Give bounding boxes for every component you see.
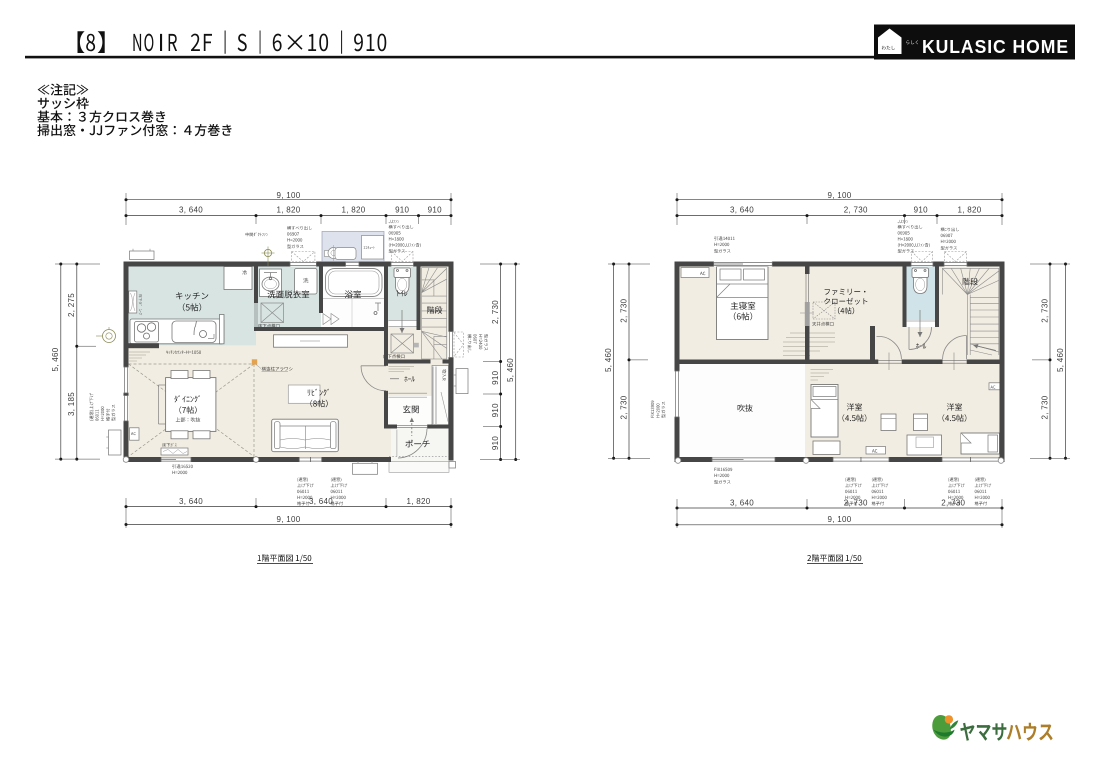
svg-text:5, 460: 5, 460 — [1056, 348, 1065, 372]
svg-text:5, 460: 5, 460 — [506, 358, 515, 382]
svg-text:2, 730: 2, 730 — [844, 206, 868, 215]
svg-text:910: 910 — [428, 206, 442, 215]
svg-text:910: 910 — [491, 370, 500, 384]
svg-text:5, 460: 5, 460 — [51, 347, 60, 371]
svg-text:910: 910 — [491, 403, 500, 417]
svg-text:2, 730: 2, 730 — [491, 300, 500, 324]
svg-text:1, 820: 1, 820 — [406, 497, 430, 506]
svg-text:3, 640: 3, 640 — [179, 497, 203, 506]
svg-text:2, 275: 2, 275 — [67, 293, 76, 317]
svg-text:3, 640: 3, 640 — [730, 206, 754, 215]
svg-text:3, 640: 3, 640 — [730, 498, 754, 507]
svg-text:9, 100: 9, 100 — [276, 515, 300, 524]
svg-text:910: 910 — [914, 206, 928, 215]
svg-text:2, 730: 2, 730 — [1040, 395, 1049, 419]
svg-text:1, 820: 1, 820 — [276, 206, 300, 215]
svg-text:1, 820: 1, 820 — [957, 206, 981, 215]
svg-text:9, 100: 9, 100 — [276, 191, 300, 200]
svg-text:910: 910 — [395, 206, 409, 215]
svg-text:2, 730: 2, 730 — [941, 498, 965, 507]
svg-text:KULASIC HOME: KULASIC HOME — [922, 36, 1069, 57]
svg-text:3, 640: 3, 640 — [179, 206, 203, 215]
svg-text:5, 460: 5, 460 — [604, 348, 613, 372]
svg-text:1, 820: 1, 820 — [341, 206, 365, 215]
svg-text:9, 100: 9, 100 — [827, 191, 851, 200]
svg-text:910: 910 — [491, 436, 500, 450]
svg-text:3, 185: 3, 185 — [67, 392, 76, 416]
svg-text:2, 730: 2, 730 — [1040, 298, 1049, 322]
svg-text:9, 100: 9, 100 — [827, 515, 851, 524]
svg-text:2, 730: 2, 730 — [619, 395, 628, 419]
svg-text:3, 640: 3, 640 — [309, 497, 333, 506]
svg-text:2, 730: 2, 730 — [619, 298, 628, 322]
svg-text:2, 730: 2, 730 — [844, 498, 868, 507]
